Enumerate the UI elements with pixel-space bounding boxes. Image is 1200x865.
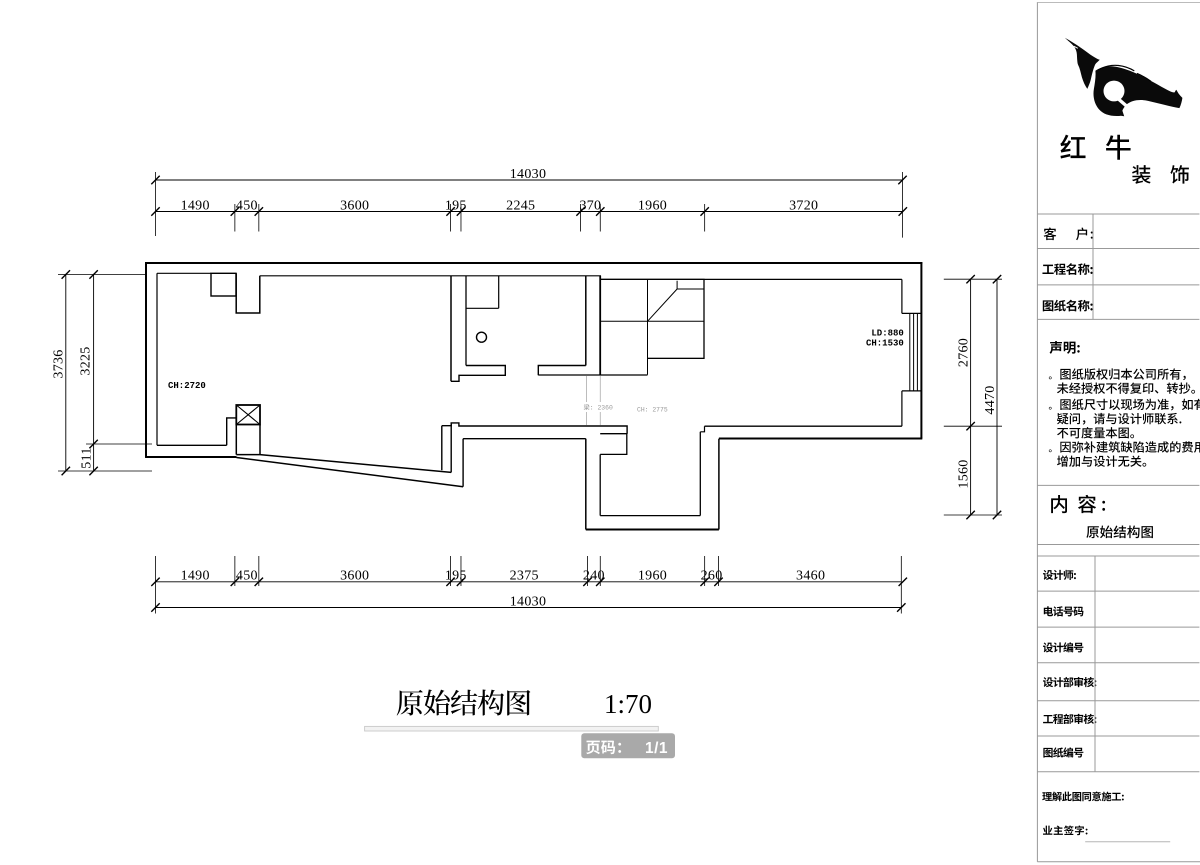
svg-text:: 2360: : 2360 [590,405,613,412]
svg-text:2375: 2375 [510,569,539,584]
svg-text:LD:880: LD:880 [871,329,903,339]
svg-text:CH:1530: CH:1530 [866,339,904,349]
svg-text:3600: 3600 [340,198,369,213]
svg-text:4470: 4470 [983,385,998,414]
svg-text:195: 195 [445,569,467,584]
svg-text:240: 240 [583,569,605,584]
svg-text:1/1: 1/1 [645,740,668,757]
svg-text:14030: 14030 [510,595,547,610]
svg-text:2760: 2760 [957,338,972,367]
svg-text:511: 511 [80,447,95,468]
svg-text:1960: 1960 [638,198,667,213]
svg-text:1:70: 1:70 [604,689,652,719]
svg-text:370: 370 [579,198,601,213]
svg-text:195: 195 [445,198,467,213]
svg-text:3720: 3720 [789,198,818,213]
svg-text:CH:2720: CH:2720 [168,381,206,391]
svg-text:450: 450 [236,569,258,584]
svg-text:1490: 1490 [181,569,210,584]
svg-text:1960: 1960 [638,569,667,584]
svg-text:3600: 3600 [340,569,369,584]
svg-text:3225: 3225 [79,346,94,375]
svg-text:3736: 3736 [52,349,67,378]
svg-text:3460: 3460 [796,569,825,584]
svg-text:450: 450 [236,198,258,213]
svg-text:2245: 2245 [506,198,535,213]
svg-text:1490: 1490 [181,198,210,213]
svg-text:1560: 1560 [957,459,972,488]
svg-text:14030: 14030 [510,167,547,182]
svg-text:CH: 2775: CH: 2775 [637,407,668,414]
svg-text:260: 260 [701,569,723,584]
